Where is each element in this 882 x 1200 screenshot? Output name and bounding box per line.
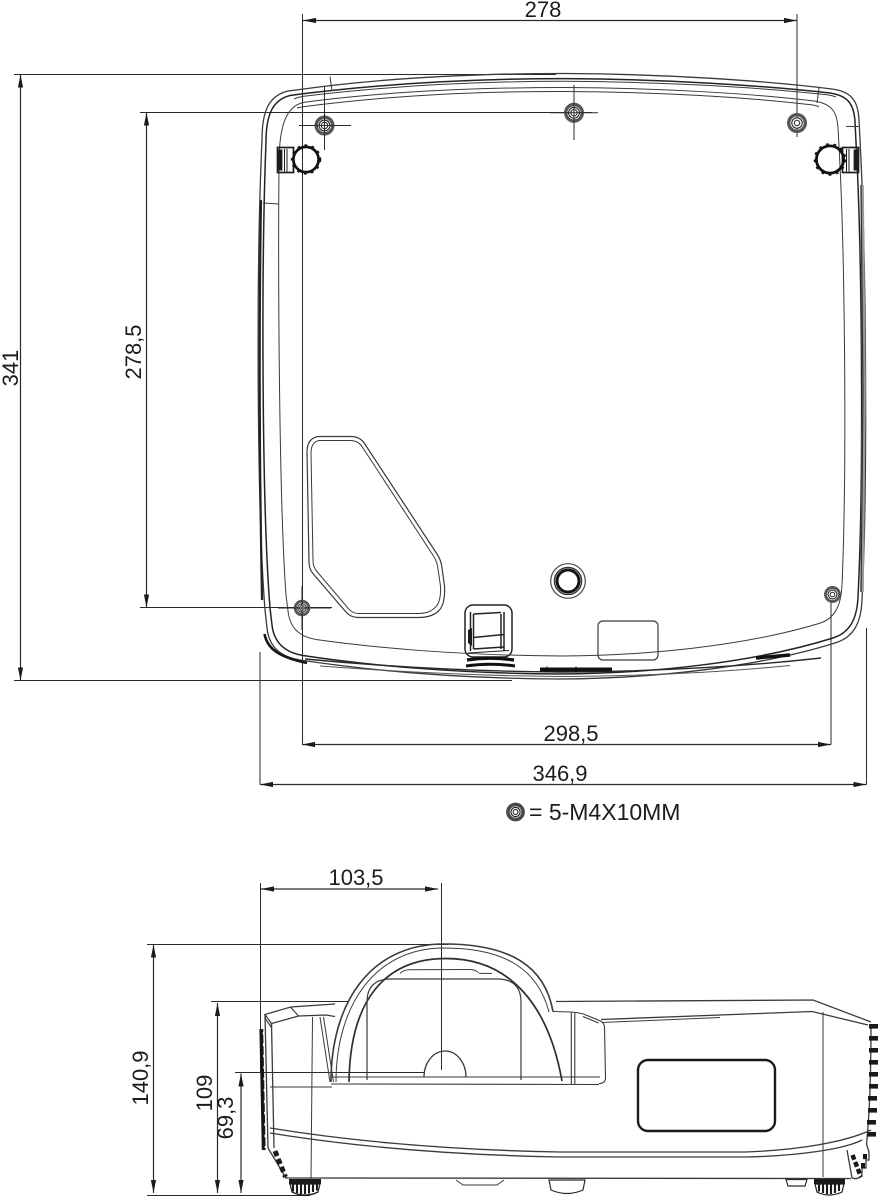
svg-text:341: 341: [0, 350, 23, 387]
svg-text:103,5: 103,5: [328, 865, 383, 890]
svg-text:278: 278: [525, 0, 562, 22]
svg-text:140,9: 140,9: [128, 1050, 153, 1105]
svg-text:298,5: 298,5: [543, 721, 598, 746]
svg-text:= 5-M4X10MM: = 5-M4X10MM: [529, 799, 680, 825]
svg-text:278,5: 278,5: [121, 324, 146, 379]
svg-text:69,3: 69,3: [213, 1097, 238, 1140]
svg-text:346,9: 346,9: [532, 761, 587, 786]
